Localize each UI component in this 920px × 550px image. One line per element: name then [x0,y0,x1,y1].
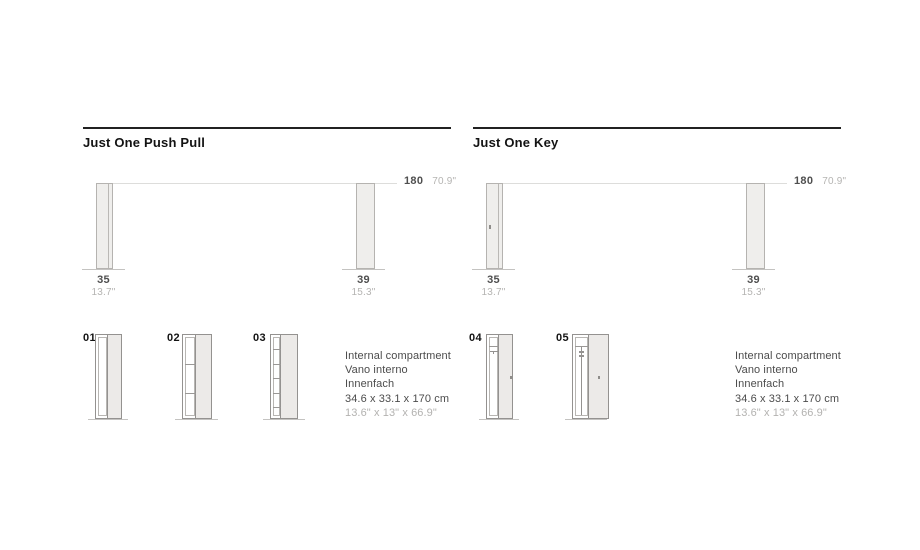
width-inch-value: 13.7" [472,287,515,298]
height-dimension-line [96,183,397,184]
variant-02-diagram [182,334,212,419]
spec-line-de: Innenfach [345,377,451,391]
spec-dimensions-inch: 13.6" x 13" x 66.9" [345,406,451,420]
spec-line-en: Internal compartment [735,349,841,363]
variant-number: 03 [253,332,266,344]
shelf-line [185,393,196,394]
section-title: Just One Key [473,135,559,150]
height-cm-value: 180 [794,175,813,187]
compartment-frame [98,337,107,416]
shelf-line [273,378,281,379]
product-section-key: Just One Key 35 13.7" 39 15.3" 180 70.9"… [473,0,841,550]
compartment-frame [489,337,498,416]
side-panel [195,335,211,418]
variant-04-diagram [486,334,513,419]
hanging-rail [490,351,498,352]
variant-03-diagram [270,334,298,419]
height-dimension: 180 70.9" [794,175,846,187]
section-title: Just One Push Pull [83,135,205,150]
lock-keyhole [598,376,600,379]
side-panel [107,335,121,418]
spec-text-block: Internal compartment Vano interno Innenf… [735,349,841,420]
variant-01-diagram [95,334,122,419]
width-dimension: 35 13.7" [82,274,125,298]
spec-sheet: Just One Push Pull 35 13.7" 39 15.3" 180… [0,0,920,550]
cabinet-39-front [356,183,375,269]
variant-number: 02 [167,332,180,344]
floor-line [732,269,775,270]
floor-line [175,419,218,420]
width-dimension: 39 15.3" [732,274,775,298]
shelf-line [273,349,281,350]
cabinet-39-front [746,183,765,269]
variant-05-diagram [572,334,609,419]
door-gap-line [498,184,499,268]
spec-line-de: Innenfach [735,377,841,391]
width-cm-value: 39 [732,274,775,286]
floor-line [479,419,519,420]
height-inch-value: 70.9" [432,176,456,187]
height-dimension-line [486,183,787,184]
width-dimension: 35 13.7" [472,274,515,298]
vertical-rod [581,347,582,415]
cabinet-35-front [486,183,503,269]
section-divider-rule [473,127,841,129]
section-divider-rule [83,127,451,129]
floor-line [565,419,607,420]
spec-dimensions-cm: 34.6 x 33.1 x 170 cm [345,392,451,406]
rod-handle [579,355,584,357]
floor-line [263,419,305,420]
shelf-line [575,346,589,347]
shelf-line [489,346,499,347]
floor-line [82,269,125,270]
rod-handle [579,351,584,353]
product-section-push-pull: Just One Push Pull 35 13.7" 39 15.3" 180… [83,0,451,550]
door-gap-line [108,184,109,268]
spec-line-it: Vano interno [735,363,841,377]
rail-hook [493,351,494,354]
height-cm-value: 180 [404,175,423,187]
variant-number: 04 [469,332,482,344]
floor-line [88,419,128,420]
spec-line-it: Vano interno [345,363,451,377]
height-dimension: 180 70.9" [404,175,456,187]
lock-keyhole [489,225,491,229]
spec-text-block: Internal compartment Vano interno Innenf… [345,349,451,420]
variant-number: 05 [556,332,569,344]
width-inch-value: 15.3" [342,287,385,298]
floor-line [342,269,385,270]
width-inch-value: 13.7" [82,287,125,298]
width-cm-value: 39 [342,274,385,286]
width-cm-value: 35 [472,274,515,286]
spec-dimensions-inch: 13.6" x 13" x 66.9" [735,406,841,420]
shelf-line [273,393,281,394]
width-dimension: 39 15.3" [342,274,385,298]
shelf-line [273,407,281,408]
width-cm-value: 35 [82,274,125,286]
floor-line [472,269,515,270]
spec-dimensions-cm: 34.6 x 33.1 x 170 cm [735,392,841,406]
height-inch-value: 70.9" [822,176,846,187]
lock-keyhole [510,376,512,379]
spec-line-en: Internal compartment [345,349,451,363]
width-inch-value: 15.3" [732,287,775,298]
compartment-frame [185,337,195,416]
shelf-line [185,364,196,365]
cabinet-35-front [96,183,113,269]
side-panel [280,335,297,418]
shelf-line [273,364,281,365]
